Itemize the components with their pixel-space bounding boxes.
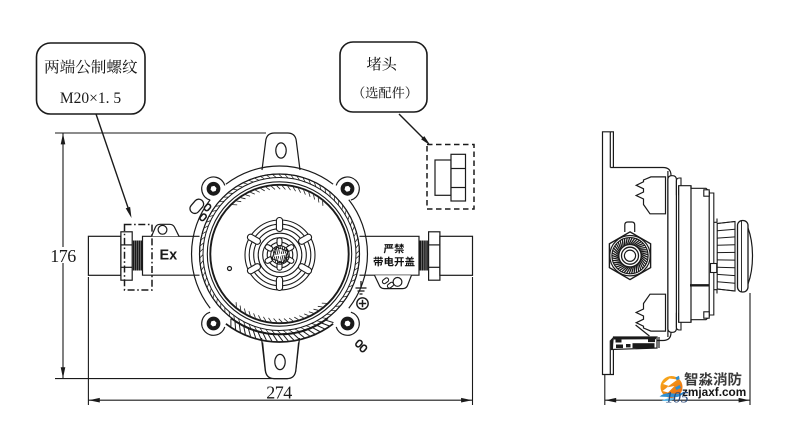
svg-text:M20×1. 5: M20×1. 5 bbox=[60, 90, 122, 107]
svg-text:zmjaxf.com: zmjaxf.com bbox=[682, 385, 746, 399]
svg-text:274: 274 bbox=[266, 383, 292, 403]
svg-text:105: 105 bbox=[665, 390, 689, 407]
svg-text:176: 176 bbox=[50, 246, 76, 266]
svg-text:Ex: Ex bbox=[160, 248, 178, 264]
